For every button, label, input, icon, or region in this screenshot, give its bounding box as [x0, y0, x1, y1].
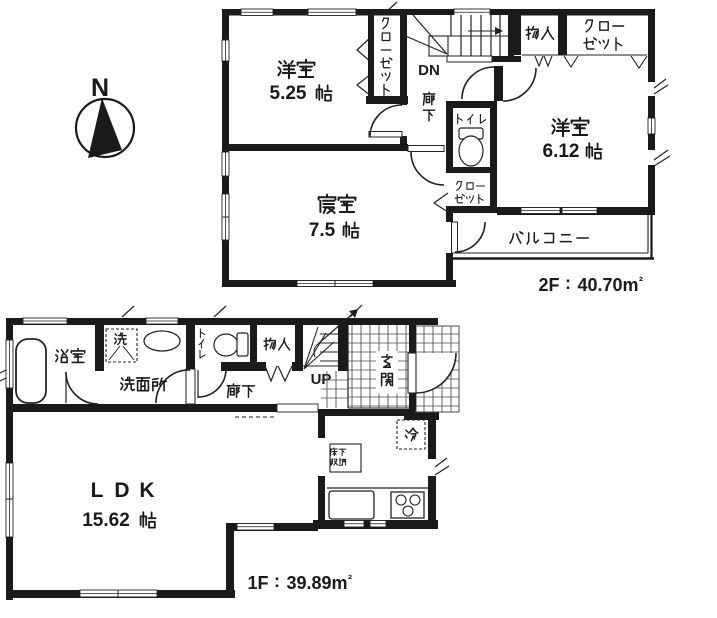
- svg-text:15.62: 15.62: [82, 510, 130, 531]
- svg-text:UP: UP: [311, 371, 332, 388]
- svg-text::: :: [274, 571, 280, 591]
- svg-text:D: D: [114, 479, 129, 502]
- svg-text:²: ²: [348, 572, 352, 586]
- svg-text:L: L: [91, 479, 104, 502]
- svg-text:6.12: 6.12: [543, 141, 580, 162]
- svg-text:K: K: [139, 479, 154, 502]
- svg-text:2F: 2F: [538, 275, 559, 295]
- svg-text:7.5: 7.5: [309, 220, 336, 241]
- svg-text:N: N: [91, 74, 109, 102]
- svg-text:²: ²: [639, 274, 643, 288]
- svg-text:40.70m: 40.70m: [577, 275, 638, 295]
- svg-text:5.25: 5.25: [270, 83, 307, 104]
- svg-text:DN: DN: [418, 62, 440, 79]
- svg-text::: :: [565, 273, 571, 293]
- svg-text:39.89m: 39.89m: [286, 573, 347, 593]
- svg-text:1F: 1F: [247, 573, 268, 593]
